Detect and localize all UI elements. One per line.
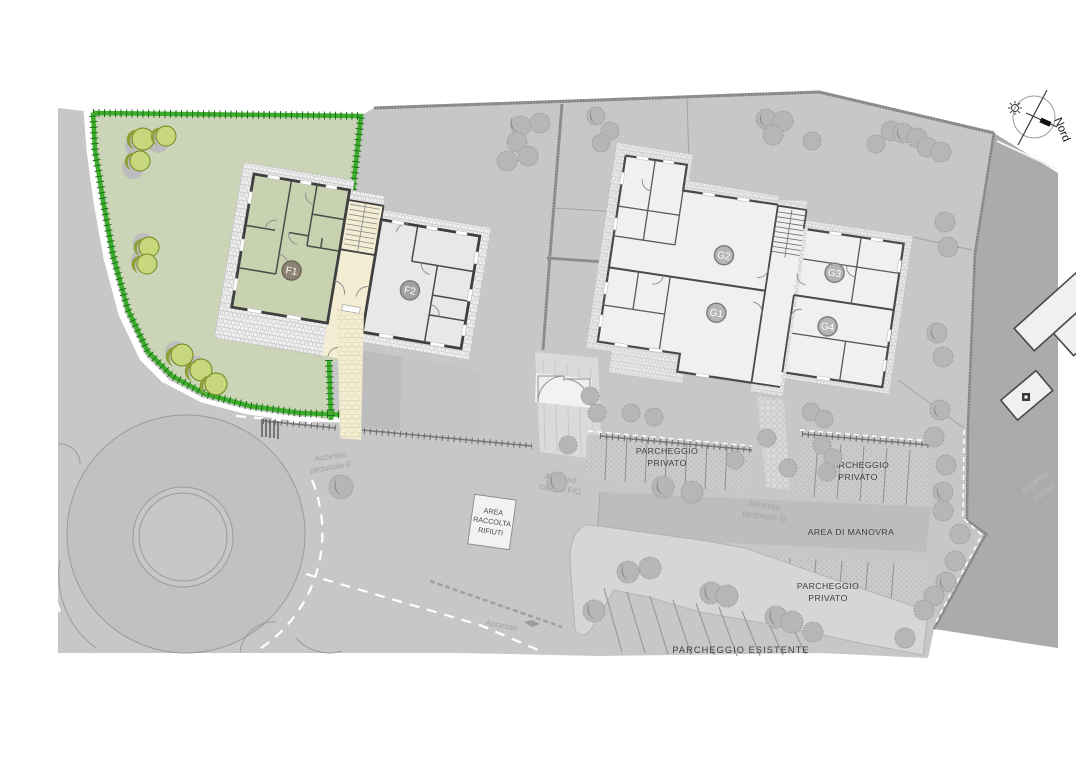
svg-text:G3: G3	[827, 267, 842, 280]
svg-text:PARCHEGGIO: PARCHEGGIO	[797, 581, 859, 591]
svg-text:AREA DI MANOVRA: AREA DI MANOVRA	[808, 527, 895, 537]
svg-text:G1: G1	[709, 307, 724, 320]
svg-text:G4: G4	[820, 321, 835, 334]
svg-text:F2: F2	[403, 285, 417, 298]
svg-text:PRIVATO: PRIVATO	[838, 472, 878, 482]
svg-text:PRIVATO: PRIVATO	[808, 593, 848, 603]
svg-text:PRIVATO: PRIVATO	[647, 458, 687, 468]
svg-text:PARCHEGGIO ESISTENTE: PARCHEGGIO ESISTENTE	[672, 645, 809, 655]
svg-text:PARCHEGGIO: PARCHEGGIO	[636, 446, 698, 456]
svg-text:F1: F1	[285, 265, 299, 278]
svg-text:G2: G2	[716, 250, 731, 263]
